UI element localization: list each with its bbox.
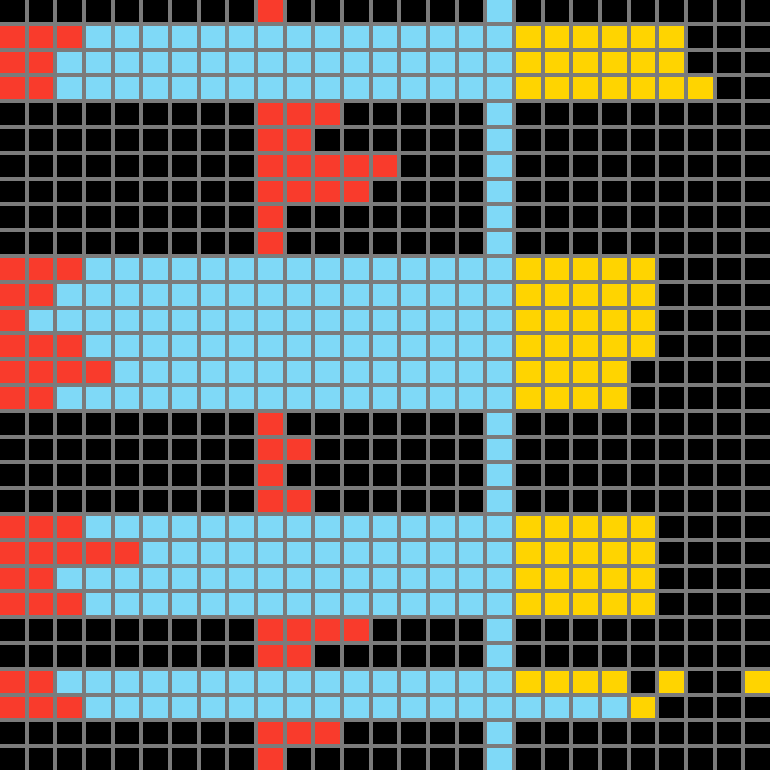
grid-cell-red bbox=[315, 103, 340, 125]
grid-cell-black bbox=[172, 645, 197, 667]
grid-cell-black bbox=[430, 439, 455, 461]
grid-cell-sky-blue bbox=[459, 335, 484, 357]
grid-cell-red bbox=[0, 26, 25, 48]
grid-cell-black bbox=[287, 413, 312, 435]
grid-cell-red bbox=[29, 568, 54, 590]
grid-cell-sky-blue bbox=[344, 593, 369, 615]
grid-cell-sky-blue bbox=[315, 568, 340, 590]
grid-cell-black bbox=[659, 464, 684, 486]
grid-cell-yellow bbox=[516, 671, 541, 693]
grid-cell-black bbox=[459, 413, 484, 435]
grid-cell-black bbox=[143, 490, 168, 512]
grid-cell-sky-blue bbox=[86, 697, 111, 719]
grid-cell-black bbox=[29, 232, 54, 254]
grid-cell-black bbox=[516, 181, 541, 203]
grid-cell-black bbox=[430, 464, 455, 486]
grid-cell-black bbox=[573, 181, 598, 203]
grid-cell-sky-blue bbox=[258, 52, 283, 74]
grid-cell-sky-blue bbox=[344, 387, 369, 409]
grid-cell-black bbox=[430, 722, 455, 744]
grid-cell-sky-blue bbox=[401, 697, 426, 719]
grid-cell-sky-blue bbox=[430, 568, 455, 590]
grid-cell-sky-blue bbox=[315, 52, 340, 74]
grid-cell-black bbox=[688, 490, 713, 512]
grid-cell-yellow bbox=[516, 52, 541, 74]
grid-cell-red bbox=[29, 335, 54, 357]
grid-cell-black bbox=[172, 232, 197, 254]
grid-cell-sky-blue bbox=[487, 206, 512, 228]
grid-cell-black bbox=[172, 181, 197, 203]
grid-cell-sky-blue bbox=[401, 516, 426, 538]
grid-cell-sky-blue bbox=[373, 361, 398, 383]
grid-cell-black bbox=[688, 206, 713, 228]
grid-cell-sky-blue bbox=[487, 387, 512, 409]
grid-cell-black bbox=[373, 645, 398, 667]
grid-cell-black bbox=[745, 722, 770, 744]
grid-cell-sky-blue bbox=[172, 697, 197, 719]
grid-cell-black bbox=[573, 155, 598, 177]
grid-cell-sky-blue bbox=[29, 310, 54, 332]
grid-cell-yellow bbox=[573, 26, 598, 48]
grid-cell-black bbox=[516, 619, 541, 641]
grid-cell-black bbox=[659, 258, 684, 280]
grid-cell-sky-blue bbox=[229, 697, 254, 719]
grid-cell-sky-blue bbox=[344, 516, 369, 538]
grid-cell-black bbox=[545, 413, 570, 435]
grid-cell-yellow bbox=[545, 361, 570, 383]
grid-cell-black bbox=[602, 181, 627, 203]
grid-cell-black bbox=[573, 464, 598, 486]
grid-cell-sky-blue bbox=[172, 593, 197, 615]
grid-cell-sky-blue bbox=[487, 619, 512, 641]
grid-cell-black bbox=[401, 103, 426, 125]
grid-cell-black bbox=[573, 413, 598, 435]
grid-cell-sky-blue bbox=[487, 645, 512, 667]
grid-cell-sky-blue bbox=[201, 26, 226, 48]
grid-cell-black bbox=[631, 129, 656, 151]
grid-cell-sky-blue bbox=[229, 310, 254, 332]
grid-cell-black bbox=[57, 619, 82, 641]
grid-cell-yellow bbox=[516, 568, 541, 590]
grid-cell-black bbox=[86, 206, 111, 228]
grid-cell-sky-blue bbox=[459, 310, 484, 332]
grid-cell-black bbox=[631, 464, 656, 486]
grid-cell-black bbox=[717, 748, 742, 770]
grid-cell-red bbox=[29, 284, 54, 306]
grid-cell-sky-blue bbox=[86, 284, 111, 306]
grid-cell-black bbox=[57, 413, 82, 435]
grid-cell-black bbox=[459, 129, 484, 151]
grid-cell-sky-blue bbox=[258, 77, 283, 99]
grid-cell-sky-blue bbox=[487, 568, 512, 590]
grid-cell-sky-blue bbox=[401, 568, 426, 590]
grid-cell-black bbox=[0, 645, 25, 667]
grid-cell-sky-blue bbox=[315, 697, 340, 719]
grid-cell-sky-blue bbox=[229, 26, 254, 48]
grid-cell-black bbox=[401, 155, 426, 177]
grid-cell-black bbox=[315, 464, 340, 486]
grid-cell-sky-blue bbox=[602, 697, 627, 719]
grid-cell-black bbox=[745, 0, 770, 22]
grid-cell-black bbox=[430, 232, 455, 254]
grid-cell-red bbox=[258, 155, 283, 177]
grid-cell-yellow bbox=[631, 77, 656, 99]
grid-cell-black bbox=[545, 0, 570, 22]
grid-cell-black bbox=[717, 516, 742, 538]
grid-cell-yellow bbox=[573, 258, 598, 280]
grid-cell-black bbox=[688, 748, 713, 770]
grid-cell-sky-blue bbox=[115, 387, 140, 409]
grid-cell-sky-blue bbox=[143, 52, 168, 74]
grid-cell-red bbox=[86, 542, 111, 564]
grid-cell-sky-blue bbox=[344, 335, 369, 357]
grid-cell-red bbox=[344, 155, 369, 177]
grid-cell-sky-blue bbox=[373, 516, 398, 538]
grid-cell-black bbox=[573, 103, 598, 125]
grid-cell-black bbox=[717, 181, 742, 203]
grid-cell-red bbox=[287, 722, 312, 744]
grid-cell-sky-blue bbox=[201, 361, 226, 383]
grid-cell-sky-blue bbox=[115, 284, 140, 306]
grid-cell-black bbox=[0, 232, 25, 254]
grid-cell-black bbox=[688, 464, 713, 486]
grid-cell-red bbox=[258, 0, 283, 22]
grid-cell-black bbox=[0, 0, 25, 22]
grid-cell-yellow bbox=[545, 671, 570, 693]
grid-cell-black bbox=[29, 103, 54, 125]
grid-cell-red bbox=[57, 361, 82, 383]
grid-cell-yellow bbox=[602, 542, 627, 564]
grid-cell-black bbox=[373, 748, 398, 770]
grid-cell-red bbox=[57, 516, 82, 538]
grid-cell-yellow bbox=[631, 697, 656, 719]
grid-cell-red bbox=[315, 181, 340, 203]
grid-cell-sky-blue bbox=[516, 697, 541, 719]
grid-cell-black bbox=[745, 206, 770, 228]
grid-cell-sky-blue bbox=[115, 310, 140, 332]
grid-cell-black bbox=[516, 464, 541, 486]
grid-cell-black bbox=[659, 206, 684, 228]
grid-cell-black bbox=[717, 645, 742, 667]
grid-cell-black bbox=[717, 542, 742, 564]
grid-cell-black bbox=[745, 103, 770, 125]
grid-cell-black bbox=[659, 361, 684, 383]
grid-cell-black bbox=[745, 361, 770, 383]
grid-cell-yellow bbox=[659, 671, 684, 693]
grid-cell-sky-blue bbox=[487, 439, 512, 461]
grid-cell-black bbox=[659, 697, 684, 719]
grid-cell-yellow bbox=[602, 77, 627, 99]
grid-cell-black bbox=[115, 0, 140, 22]
grid-cell-red bbox=[29, 52, 54, 74]
grid-cell-sky-blue bbox=[172, 258, 197, 280]
grid-cell-sky-blue bbox=[315, 516, 340, 538]
grid-cell-red bbox=[57, 593, 82, 615]
grid-cell-black bbox=[516, 439, 541, 461]
grid-cell-yellow bbox=[545, 387, 570, 409]
grid-cell-black bbox=[459, 439, 484, 461]
grid-cell-black bbox=[545, 619, 570, 641]
grid-cell-sky-blue bbox=[401, 335, 426, 357]
grid-cell-black bbox=[602, 129, 627, 151]
grid-cell-black bbox=[659, 232, 684, 254]
grid-cell-sky-blue bbox=[401, 26, 426, 48]
grid-cell-black bbox=[229, 464, 254, 486]
grid-cell-black bbox=[172, 206, 197, 228]
grid-cell-yellow bbox=[573, 593, 598, 615]
grid-cell-red bbox=[0, 52, 25, 74]
grid-cell-black bbox=[745, 335, 770, 357]
grid-cell-sky-blue bbox=[373, 593, 398, 615]
grid-cell-sky-blue bbox=[487, 490, 512, 512]
grid-cell-red bbox=[258, 722, 283, 744]
grid-cell-black bbox=[229, 181, 254, 203]
grid-cell-black bbox=[688, 542, 713, 564]
grid-cell-black bbox=[0, 439, 25, 461]
grid-cell-sky-blue bbox=[172, 542, 197, 564]
grid-cell-black bbox=[201, 722, 226, 744]
grid-cell-red bbox=[287, 490, 312, 512]
grid-cell-black bbox=[573, 129, 598, 151]
grid-cell-sky-blue bbox=[258, 361, 283, 383]
grid-cell-black bbox=[545, 722, 570, 744]
grid-cell-black bbox=[430, 129, 455, 151]
grid-cell-black bbox=[143, 413, 168, 435]
grid-cell-sky-blue bbox=[430, 387, 455, 409]
grid-cell-black bbox=[86, 155, 111, 177]
grid-cell-black bbox=[57, 103, 82, 125]
grid-cell-sky-blue bbox=[143, 77, 168, 99]
grid-cell-black bbox=[143, 129, 168, 151]
grid-cell-black bbox=[373, 464, 398, 486]
grid-cell-yellow bbox=[573, 542, 598, 564]
grid-cell-black bbox=[401, 619, 426, 641]
grid-cell-black bbox=[401, 645, 426, 667]
grid-cell-sky-blue bbox=[344, 310, 369, 332]
grid-cell-black bbox=[287, 748, 312, 770]
grid-cell-black bbox=[430, 155, 455, 177]
grid-cell-sky-blue bbox=[172, 568, 197, 590]
grid-cell-black bbox=[143, 748, 168, 770]
grid-cell-sky-blue bbox=[373, 542, 398, 564]
grid-cell-yellow bbox=[545, 77, 570, 99]
grid-cell-black bbox=[315, 413, 340, 435]
grid-cell-yellow bbox=[659, 77, 684, 99]
grid-cell-sky-blue bbox=[143, 593, 168, 615]
grid-cell-sky-blue bbox=[172, 52, 197, 74]
grid-cell-black bbox=[573, 206, 598, 228]
grid-cell-black bbox=[29, 439, 54, 461]
grid-cell-sky-blue bbox=[315, 310, 340, 332]
grid-cell-black bbox=[573, 439, 598, 461]
grid-cell-yellow bbox=[573, 568, 598, 590]
grid-cell-black bbox=[631, 748, 656, 770]
grid-cell-red bbox=[258, 619, 283, 641]
grid-cell-black bbox=[516, 232, 541, 254]
grid-cell-black bbox=[201, 645, 226, 667]
grid-cell-black bbox=[143, 155, 168, 177]
grid-cell-black bbox=[57, 0, 82, 22]
grid-cell-black bbox=[688, 387, 713, 409]
grid-cell-sky-blue bbox=[201, 568, 226, 590]
grid-cell-sky-blue bbox=[373, 26, 398, 48]
grid-cell-yellow bbox=[516, 516, 541, 538]
grid-cell-sky-blue bbox=[430, 593, 455, 615]
grid-cell-black bbox=[86, 439, 111, 461]
grid-cell-black bbox=[0, 748, 25, 770]
grid-cell-black bbox=[602, 464, 627, 486]
grid-cell-sky-blue bbox=[172, 335, 197, 357]
grid-cell-sky-blue bbox=[487, 52, 512, 74]
grid-cell-yellow bbox=[602, 361, 627, 383]
grid-cell-black bbox=[229, 619, 254, 641]
grid-cell-black bbox=[0, 103, 25, 125]
grid-cell-sky-blue bbox=[201, 284, 226, 306]
grid-cell-yellow bbox=[602, 568, 627, 590]
grid-cell-black bbox=[201, 464, 226, 486]
grid-cell-black bbox=[143, 181, 168, 203]
grid-cell-sky-blue bbox=[430, 542, 455, 564]
grid-cell-black bbox=[688, 310, 713, 332]
grid-cell-black bbox=[344, 413, 369, 435]
grid-cell-red bbox=[258, 206, 283, 228]
grid-cell-sky-blue bbox=[487, 593, 512, 615]
grid-cell-sky-blue bbox=[86, 671, 111, 693]
grid-cell-red bbox=[29, 671, 54, 693]
grid-cell-red bbox=[258, 413, 283, 435]
grid-cell-sky-blue bbox=[430, 335, 455, 357]
grid-cell-yellow bbox=[573, 77, 598, 99]
grid-cell-black bbox=[29, 155, 54, 177]
grid-cell-black bbox=[373, 490, 398, 512]
grid-cell-sky-blue bbox=[172, 77, 197, 99]
grid-cell-red bbox=[344, 181, 369, 203]
grid-cell-black bbox=[688, 722, 713, 744]
grid-cell-red bbox=[29, 516, 54, 538]
grid-cell-sky-blue bbox=[201, 516, 226, 538]
grid-cell-sky-blue bbox=[459, 516, 484, 538]
grid-cell-sky-blue bbox=[401, 671, 426, 693]
grid-cell-black bbox=[602, 0, 627, 22]
grid-cell-yellow bbox=[516, 387, 541, 409]
grid-cell-sky-blue bbox=[258, 335, 283, 357]
grid-cell-sky-blue bbox=[430, 26, 455, 48]
grid-cell-red bbox=[29, 77, 54, 99]
grid-cell-red bbox=[57, 335, 82, 357]
grid-cell-red bbox=[258, 748, 283, 770]
grid-cell-black bbox=[86, 413, 111, 435]
grid-cell-sky-blue bbox=[143, 387, 168, 409]
grid-cell-black bbox=[688, 619, 713, 641]
grid-cell-red bbox=[258, 232, 283, 254]
grid-cell-black bbox=[0, 464, 25, 486]
grid-cell-black bbox=[0, 206, 25, 228]
grid-cell-red bbox=[258, 103, 283, 125]
grid-cell-black bbox=[688, 671, 713, 693]
grid-cell-black bbox=[717, 129, 742, 151]
grid-cell-sky-blue bbox=[86, 335, 111, 357]
grid-cell-black bbox=[745, 129, 770, 151]
grid-cell-yellow bbox=[745, 671, 770, 693]
grid-cell-black bbox=[688, 258, 713, 280]
grid-cell-black bbox=[717, 206, 742, 228]
grid-cell-black bbox=[545, 181, 570, 203]
grid-cell-black bbox=[401, 722, 426, 744]
grid-cell-sky-blue bbox=[315, 284, 340, 306]
grid-cell-sky-blue bbox=[201, 335, 226, 357]
grid-cell-sky-blue bbox=[229, 516, 254, 538]
grid-cell-black bbox=[631, 206, 656, 228]
grid-cell-sky-blue bbox=[487, 748, 512, 770]
grid-cell-black bbox=[172, 748, 197, 770]
grid-cell-yellow bbox=[573, 284, 598, 306]
grid-cell-black bbox=[602, 206, 627, 228]
grid-cell-black bbox=[745, 26, 770, 48]
grid-cell-sky-blue bbox=[373, 77, 398, 99]
grid-cell-black bbox=[631, 181, 656, 203]
grid-cell-black bbox=[516, 722, 541, 744]
grid-cell-sky-blue bbox=[86, 77, 111, 99]
grid-cell-sky-blue bbox=[459, 284, 484, 306]
grid-cell-black bbox=[57, 645, 82, 667]
grid-cell-sky-blue bbox=[172, 361, 197, 383]
grid-cell-yellow bbox=[631, 568, 656, 590]
grid-cell-black bbox=[573, 619, 598, 641]
grid-cell-black bbox=[516, 129, 541, 151]
grid-cell-sky-blue bbox=[143, 361, 168, 383]
grid-cell-black bbox=[745, 464, 770, 486]
grid-cell-black bbox=[717, 490, 742, 512]
grid-cell-sky-blue bbox=[344, 697, 369, 719]
grid-cell-black bbox=[745, 748, 770, 770]
grid-cell-sky-blue bbox=[344, 52, 369, 74]
grid-cell-black bbox=[315, 748, 340, 770]
grid-cell-red bbox=[258, 490, 283, 512]
grid-cell-black bbox=[688, 181, 713, 203]
grid-cell-black bbox=[631, 103, 656, 125]
grid-cell-black bbox=[717, 593, 742, 615]
grid-cell-black bbox=[602, 748, 627, 770]
grid-cell-sky-blue bbox=[487, 129, 512, 151]
grid-cell-black bbox=[545, 129, 570, 151]
grid-cell-black bbox=[287, 232, 312, 254]
grid-cell-black bbox=[631, 387, 656, 409]
grid-cell-black bbox=[229, 490, 254, 512]
grid-cell-yellow bbox=[545, 568, 570, 590]
grid-cell-sky-blue bbox=[229, 284, 254, 306]
grid-cell-black bbox=[717, 258, 742, 280]
grid-cell-black bbox=[143, 722, 168, 744]
grid-cell-sky-blue bbox=[430, 52, 455, 74]
grid-cell-black bbox=[688, 0, 713, 22]
grid-cell-black bbox=[717, 155, 742, 177]
grid-cell-black bbox=[172, 439, 197, 461]
grid-cell-yellow bbox=[631, 593, 656, 615]
grid-cell-sky-blue bbox=[258, 593, 283, 615]
grid-cell-black bbox=[659, 284, 684, 306]
grid-cell-sky-blue bbox=[287, 77, 312, 99]
grid-cell-yellow bbox=[545, 335, 570, 357]
grid-cell-black bbox=[602, 645, 627, 667]
grid-cell-sky-blue bbox=[201, 77, 226, 99]
grid-cell-sky-blue bbox=[229, 258, 254, 280]
grid-cell-black bbox=[631, 671, 656, 693]
grid-cell-black bbox=[545, 103, 570, 125]
grid-cell-black bbox=[717, 722, 742, 744]
grid-cell-black bbox=[344, 206, 369, 228]
grid-cell-black bbox=[344, 103, 369, 125]
grid-cell-black bbox=[573, 232, 598, 254]
